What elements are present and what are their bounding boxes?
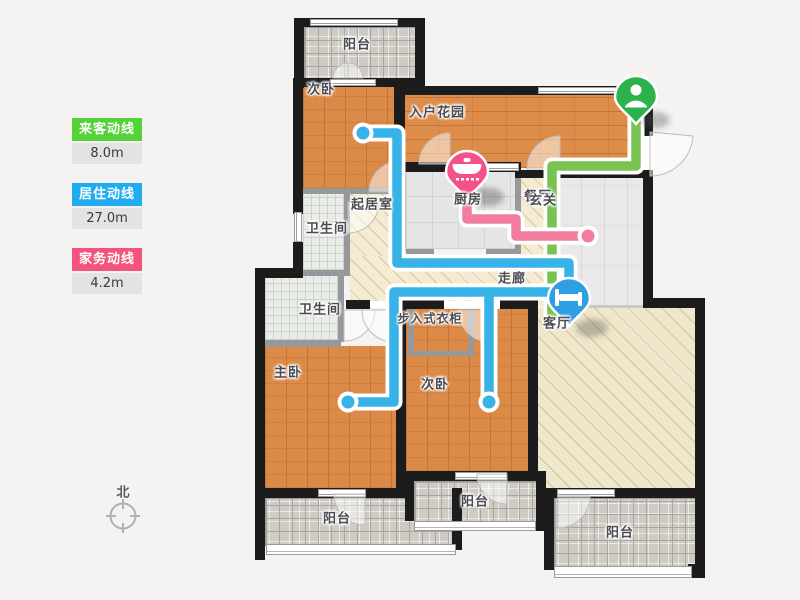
entrance-door-arc (650, 132, 693, 176)
legend-guest-value: 8.0m (72, 143, 142, 164)
room-label-closet: 步入式衣柜 (397, 310, 462, 327)
room-label-master: 主卧 (274, 362, 302, 381)
legend-resident-value: 27.0m (72, 208, 142, 229)
legend-chore-value: 4.2m (72, 273, 142, 294)
legend-item-resident[interactable]: 居住动线 27.0m (72, 183, 142, 229)
door-arc (333, 63, 348, 78)
north-label: 北 (116, 482, 129, 501)
pin-shadow (576, 319, 608, 337)
room-label-balcony-bm: 阳台 (461, 491, 489, 510)
legend: 来客动线 8.0m 居住动线 27.0m 家务动线 4.2m (72, 118, 142, 313)
floorplan-canvas: 来客动线 8.0m 居住动线 27.0m 家务动线 4.2m (0, 0, 800, 600)
room-label-bath-upper: 卫生间 (306, 218, 348, 237)
legend-item-chore[interactable]: 家务动线 4.2m (72, 248, 142, 294)
room-label-corridor: 走廊 (498, 268, 526, 287)
room-label-bath-lower: 卫生间 (299, 299, 341, 318)
legend-chore-label[interactable]: 家务动线 (72, 248, 142, 271)
legend-guest-label[interactable]: 来客动线 (72, 118, 142, 141)
room-label-kitchen: 厨房 (454, 189, 482, 208)
legend-item-guest[interactable]: 来客动线 8.0m (72, 118, 142, 164)
room-label-balcony-br: 阳台 (606, 522, 634, 541)
door-arc (419, 133, 450, 164)
room-label-bedroom-top: 次卧 (307, 79, 335, 98)
door-arc (558, 496, 590, 528)
north-compass-icon (106, 499, 140, 533)
room-label-living: 客厅 (543, 313, 571, 332)
room-label-bedroom-second: 次卧 (421, 374, 449, 393)
room-label-entry-garden: 入户花园 (409, 102, 465, 121)
room-label-balcony-top: 阳台 (343, 34, 371, 53)
room-label-balcony-bl: 阳台 (323, 508, 351, 527)
room-label-family-room: 起居室 (351, 194, 393, 213)
door-arc (348, 63, 363, 78)
room-label-foyer: 玄关 (529, 190, 557, 209)
legend-resident-label[interactable]: 居住动线 (72, 183, 142, 206)
